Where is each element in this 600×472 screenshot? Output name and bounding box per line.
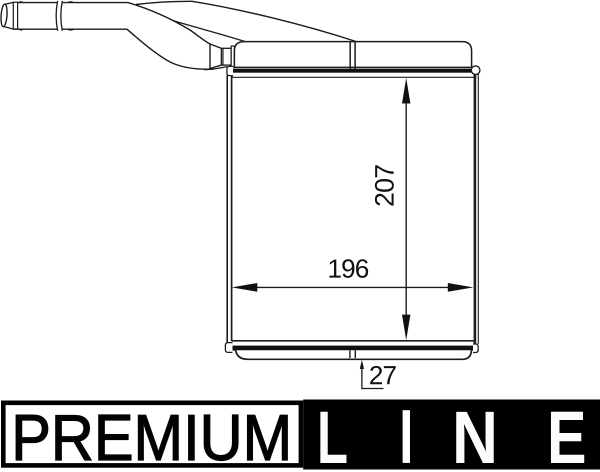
svg-text:E: E	[547, 396, 587, 472]
svg-text:N: N	[452, 396, 498, 472]
svg-text:L: L	[317, 396, 348, 472]
svg-text:PREMIUM: PREMIUM	[11, 401, 292, 472]
